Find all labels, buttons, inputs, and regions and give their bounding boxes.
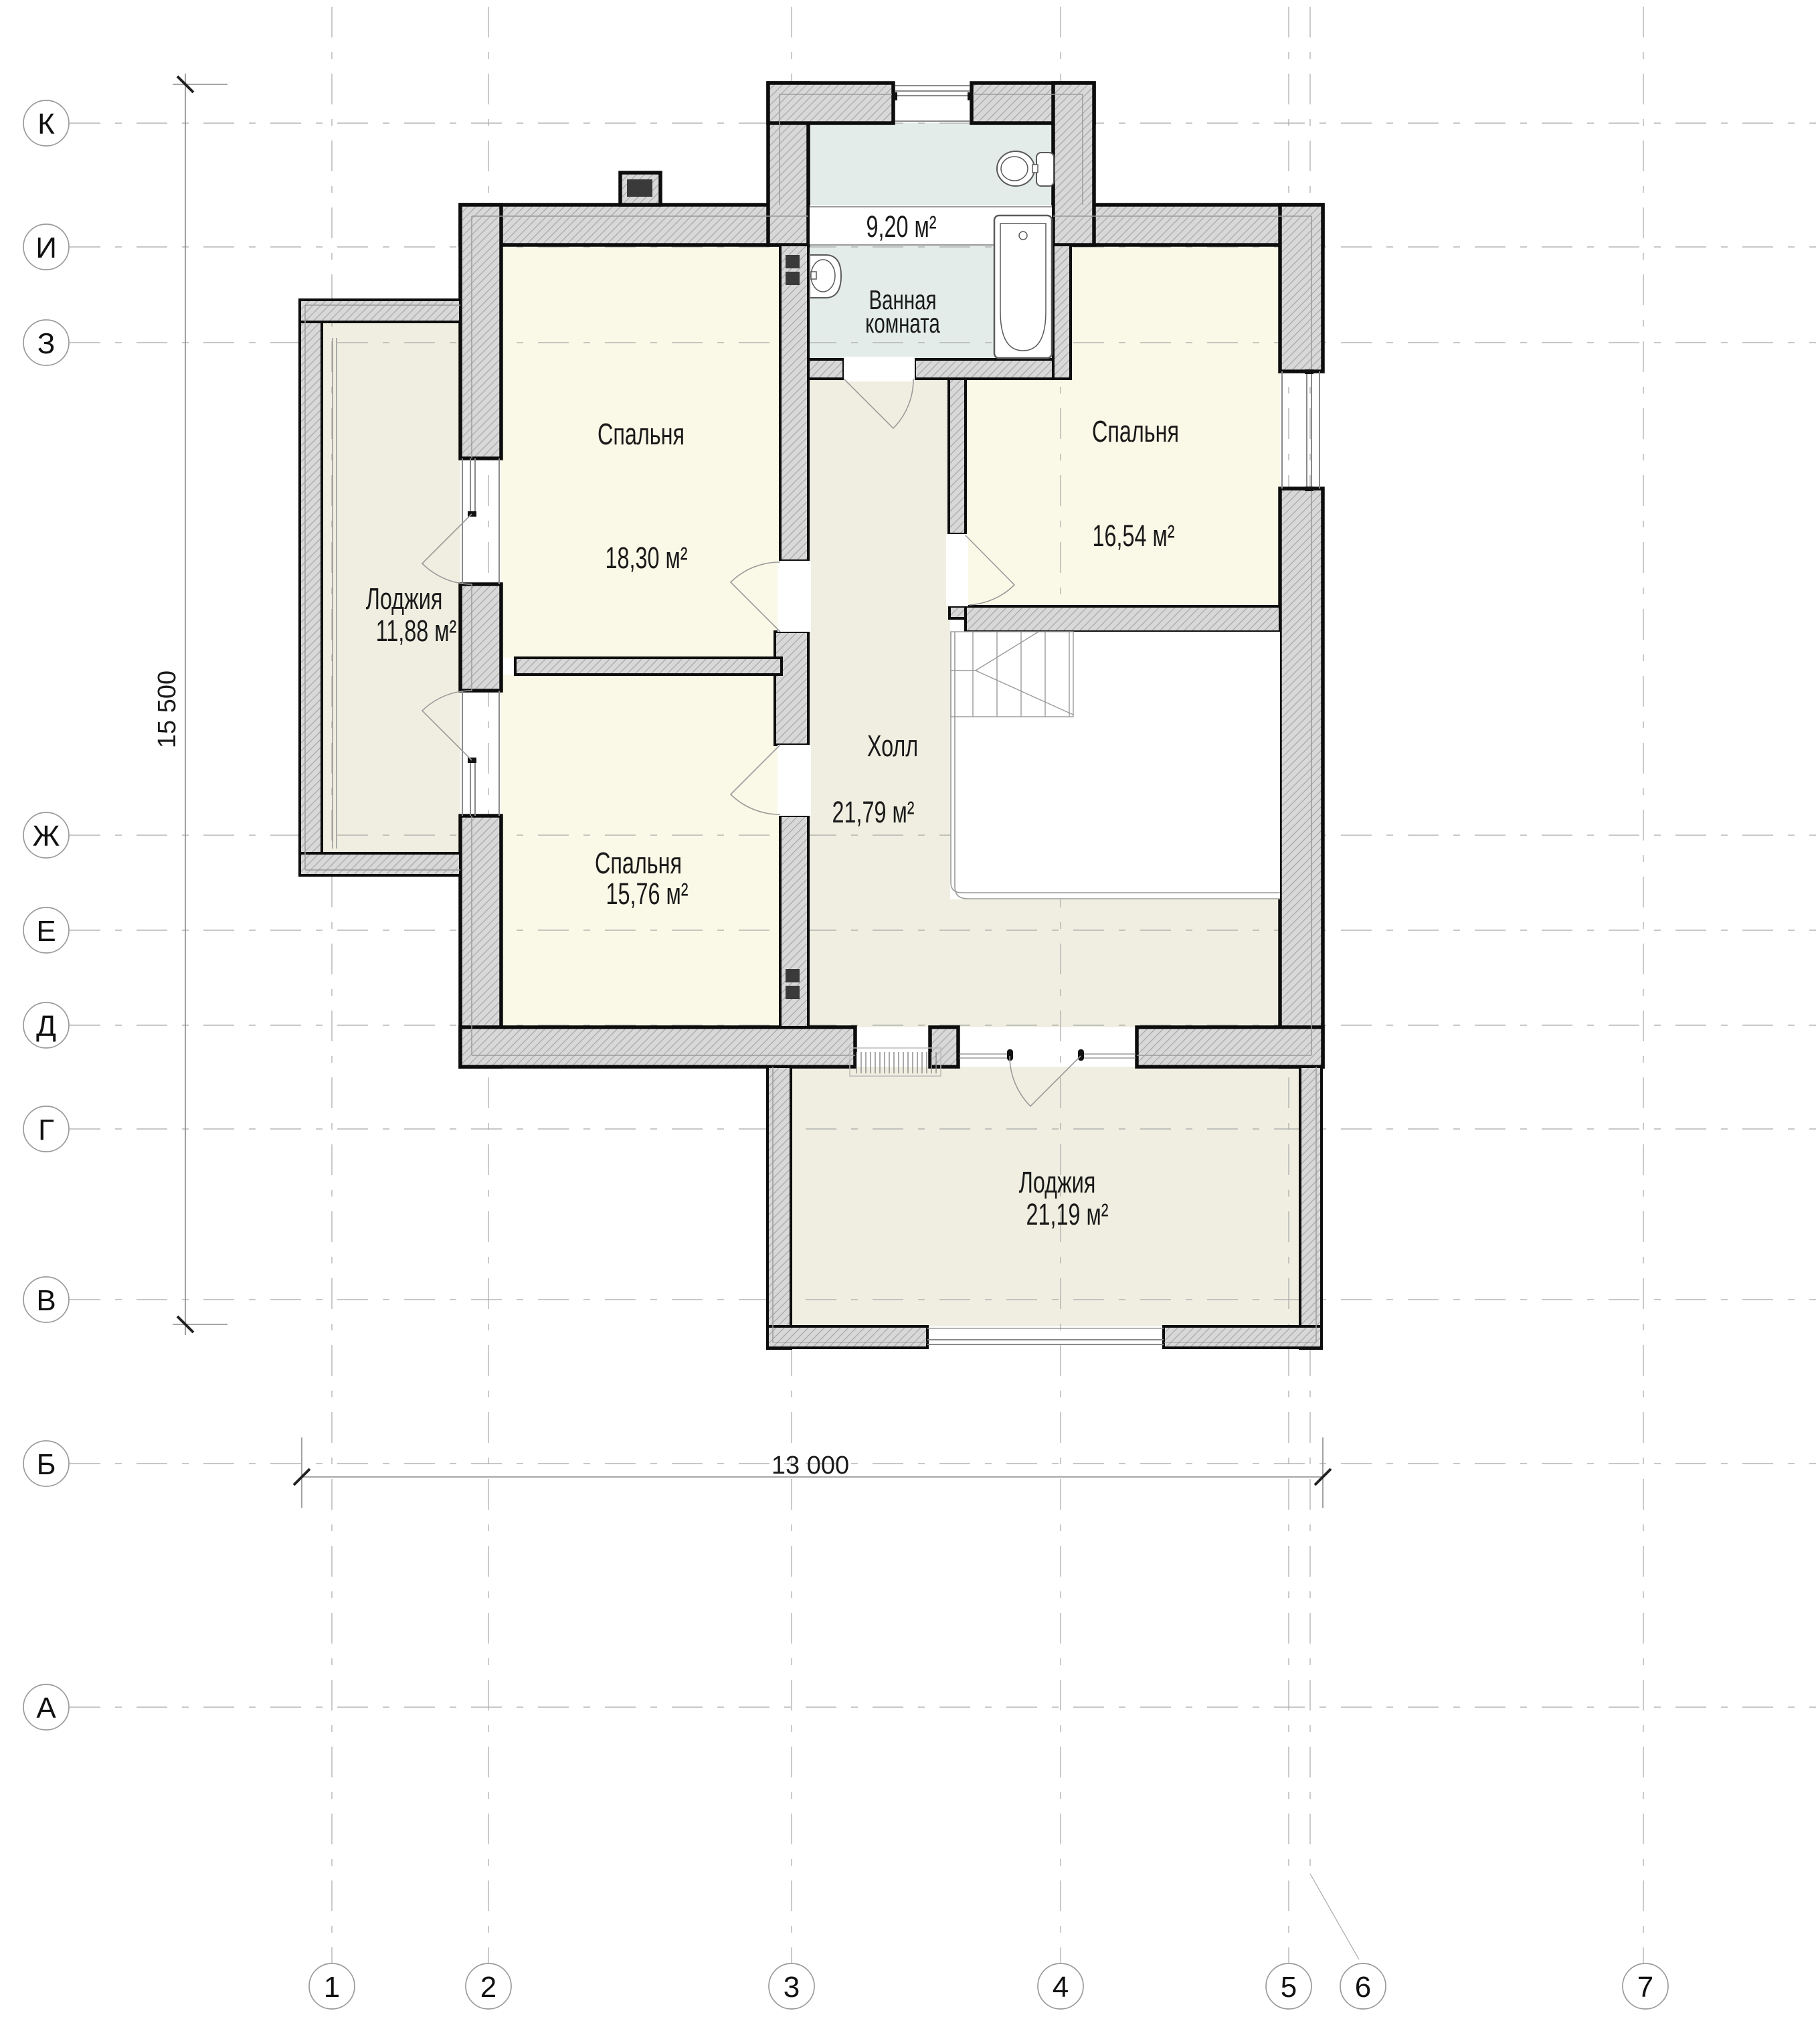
svg-text:Ж: Ж	[33, 820, 60, 853]
svg-text:15,76 м²: 15,76 м²	[606, 878, 688, 911]
svg-text:4: 4	[1053, 1971, 1069, 2004]
svg-text:Лоджия: Лоджия	[1019, 1166, 1096, 1199]
svg-text:15 500: 15 500	[153, 671, 181, 748]
svg-text:13 000: 13 000	[771, 1452, 849, 1480]
svg-text:Спальня: Спальня	[595, 847, 682, 880]
svg-text:Спальня: Спальня	[1092, 416, 1179, 448]
svg-text:7: 7	[1637, 1971, 1653, 2004]
svg-text:К: К	[37, 108, 55, 141]
svg-text:В: В	[36, 1284, 56, 1317]
svg-text:Д: Д	[36, 1010, 56, 1043]
svg-text:3: 3	[784, 1971, 800, 2004]
svg-text:2: 2	[480, 1971, 496, 2004]
svg-text:1: 1	[324, 1971, 340, 2004]
svg-text:21,79 м²: 21,79 м²	[832, 796, 914, 829]
svg-text:комната: комната	[865, 308, 940, 339]
svg-text:Холл: Холл	[867, 730, 918, 763]
svg-text:Г: Г	[38, 1114, 54, 1146]
svg-text:Б: Б	[37, 1448, 56, 1481]
svg-text:16,54 м²: 16,54 м²	[1092, 520, 1174, 553]
svg-text:21,19 м²: 21,19 м²	[1026, 1199, 1108, 1231]
svg-text:11,88 м²: 11,88 м²	[376, 615, 457, 648]
svg-text:Спальня: Спальня	[598, 418, 685, 451]
svg-text:А: А	[36, 1692, 56, 1725]
svg-text:И: И	[35, 232, 57, 264]
svg-text:6: 6	[1355, 1971, 1371, 2004]
svg-text:Лоджия: Лоджия	[366, 583, 443, 616]
svg-text:18,30 м²: 18,30 м²	[605, 542, 687, 575]
svg-text:9,20 м²: 9,20 м²	[866, 211, 936, 244]
svg-text:З: З	[37, 327, 56, 360]
svg-text:5: 5	[1281, 1971, 1297, 2004]
svg-text:Е: Е	[36, 915, 56, 948]
